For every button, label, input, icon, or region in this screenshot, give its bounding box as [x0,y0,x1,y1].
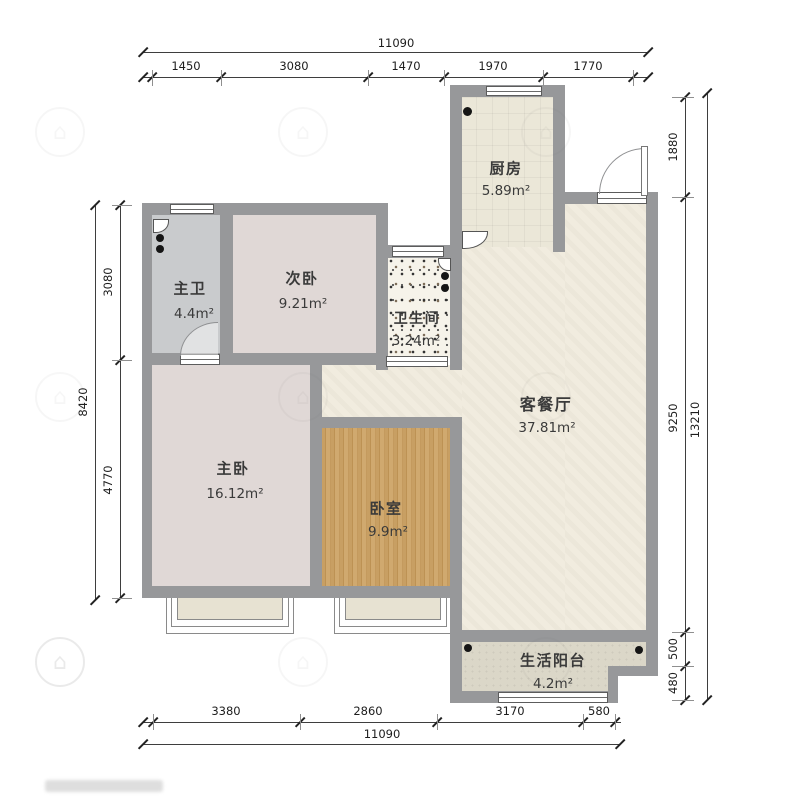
wall-bedroom-top [310,417,455,428]
dim-line-right-total [707,93,708,700]
dim-right-seg-3: 480 [666,672,680,694]
watermark-icon: ⌂ [521,637,571,687]
second-bedroom-label: 次卧 [285,268,318,289]
master-bath-dot-icon [156,245,164,253]
bedroom-area: 9.9m² [368,524,408,540]
dim-top-total: 11090 [378,36,415,50]
bathroom-dot-icon [441,284,449,292]
wall-secondbedroom-right [376,203,388,370]
master-bedroom-area: 16.12m² [206,486,263,502]
wall-left-exterior [142,203,152,598]
dim-bottom-seg-0: 3380 [211,704,240,718]
watermark-icon: ⌂ [521,372,571,422]
dim-bottom-seg-1: 2860 [353,704,382,718]
bathroom-dot-icon [441,272,449,280]
dim-line-right-segments [685,97,686,700]
dim-line-bottom-total [143,744,620,745]
dim-top-seg-0: 1450 [171,59,200,73]
kitchen-label: 厨房 [489,158,522,179]
dim-right-seg-1: 9250 [666,403,680,432]
entry-door-arc [599,148,645,194]
master-bath-area: 4.4m² [174,306,214,322]
watermark-icon: ⌂ [35,372,85,422]
wall-kitchen-left [450,85,462,370]
dim-bottom-seg-3: 580 [588,704,610,718]
living-floor-right [565,204,646,630]
watermark-icon: ⌂ [521,107,571,157]
watermark-text [45,780,163,792]
balcony-dot-icon [464,644,472,652]
bathroom-area: 3.24m² [392,333,441,349]
second-bedroom-area: 9.21m² [279,296,328,312]
living-dining-area: 37.81m² [518,420,575,436]
master-bath-window [170,204,214,214]
master-bath-dot-icon [156,234,164,242]
dim-left-seg-0: 3080 [101,267,115,296]
dim-top-seg-2: 1470 [391,59,420,73]
floor-plan: 厨房 5.89m² 主卫 4.4m² 次卧 9.21m² 卫生间 3.24m² … [0,0,800,800]
entry-door-leaf [641,146,648,196]
bathroom-door [386,356,448,367]
wall-hallway-top [142,353,388,365]
dim-top-seg-4: 1770 [573,59,602,73]
dim-bottom-seg-2: 3170 [495,704,524,718]
watermark-icon: ⌂ [278,372,328,422]
watermark-icon: ⌂ [278,637,328,687]
bathroom-window [392,246,444,257]
watermark-icon: ⌂ [278,107,328,157]
kitchen-dot-icon [463,107,472,116]
dim-line-bottom-segments [143,722,621,723]
wall-masterbath-divider [220,215,233,353]
dim-top-seg-3: 1970 [478,59,507,73]
kitchen-window [486,86,542,96]
dim-top-seg-1: 3080 [279,59,308,73]
dim-left-seg-1: 4770 [101,465,115,494]
watermark-icon: ⌂ [35,107,85,157]
wall-bottom-exterior [142,586,455,598]
bathroom-label: 卫生间 [394,308,441,328]
living-floor-left [462,247,565,630]
wall-balcony-step-v [608,666,618,703]
dim-line-left-segments [120,205,121,598]
kitchen-area: 5.89m² [482,183,531,199]
balcony-dot-icon [635,646,643,654]
watermark-icon: ⌂ [35,637,85,687]
dim-right-seg-0: 1880 [666,132,680,161]
balcony-window [498,692,608,703]
dim-right-total: 13210 [688,402,702,439]
dim-line-top-total [143,52,648,53]
master-bath-label: 主卫 [173,278,206,299]
hallway-floor [322,365,462,417]
bedroom-label: 卧室 [369,498,402,519]
wall-living-left [450,417,462,642]
dim-line-left-total [95,205,96,600]
dim-bottom-total: 11090 [364,727,401,741]
master-bedroom-label: 主卧 [216,458,249,479]
wall-right-exterior [646,192,658,676]
dim-right-seg-2: 500 [666,638,680,660]
